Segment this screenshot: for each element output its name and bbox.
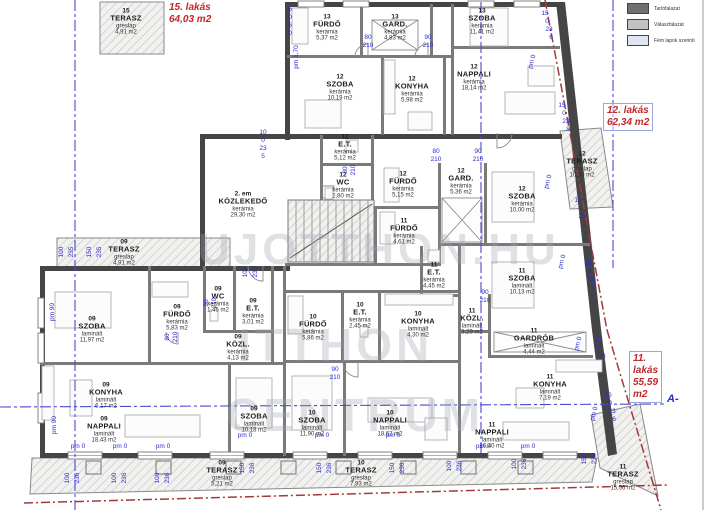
- balcony-post: [281, 461, 296, 474]
- room-name: KÖZL.: [226, 341, 250, 349]
- dimension-label: pm 0: [238, 433, 252, 440]
- dimension-label: pm 0: [386, 433, 400, 440]
- dimension-label: 0: [598, 346, 602, 353]
- dimension-label: 15: [558, 103, 565, 110]
- room-name: E.T.: [349, 309, 371, 317]
- dimension-label: 10: [604, 393, 611, 400]
- room-material: kerámia: [326, 89, 353, 96]
- dimension-label: pm 0: [476, 444, 490, 451]
- room-area: 4,13 m2: [226, 356, 250, 363]
- room-name: KONYHA: [395, 83, 429, 91]
- furniture-item: [152, 282, 188, 297]
- room-material: kerámia: [332, 187, 354, 194]
- room-label-wc-12: 12WCkerámia2,80 m2: [332, 171, 354, 200]
- room-area: 2,45 m2: [349, 324, 371, 331]
- dimension-label: 210: [330, 375, 341, 382]
- room-name: SZOBA: [508, 193, 535, 201]
- room-material: kerámia: [313, 29, 341, 36]
- dimension-label: 236: [122, 473, 129, 484]
- room-name: FÜRDŐ: [313, 21, 341, 29]
- dimension-label: 210: [423, 43, 434, 50]
- dimension-label: 0: [588, 269, 592, 276]
- dimension-label: 210: [351, 165, 358, 176]
- room-area: 29,30 m2: [219, 213, 268, 220]
- room-label-szoba-12: 12SZOBAkerámia10,19 m2: [326, 73, 353, 102]
- room-label-szoba-13: 13SZOBAkerámia11,41 m2: [468, 7, 495, 36]
- room-name: KÖZL.: [460, 315, 484, 323]
- dimension-label: 6: [582, 222, 586, 229]
- apartment-label-line: 11.: [633, 353, 658, 365]
- dimension-label: 236: [522, 459, 529, 470]
- dimension-label: 15: [541, 11, 548, 18]
- room-name: SZOBA: [78, 323, 105, 331]
- room-name: GARD.: [382, 21, 407, 29]
- room-material: kerámia: [389, 186, 417, 193]
- room-area: 15,56 m2: [607, 486, 638, 493]
- dimension-label: 23: [259, 146, 266, 153]
- legend-swatch-icon: [627, 3, 649, 14]
- dimension-label: 150: [582, 454, 589, 465]
- room-area: 5,36 m2: [448, 190, 473, 197]
- room-area: 18,14 m2: [457, 86, 491, 93]
- furniture-item: [408, 112, 432, 130]
- room-area: 5,15 m2: [389, 193, 417, 200]
- dimension-label: 236: [327, 463, 334, 474]
- room-name: FÜRDŐ: [390, 225, 418, 233]
- dimension-label: 6: [592, 285, 596, 292]
- room-label-terasz-11: 11TERASZgreslap15,56 m2: [607, 463, 638, 492]
- room-area: 5,21 m2: [206, 482, 237, 489]
- room-material: kerámia: [163, 319, 191, 326]
- room-material: kerámia: [395, 91, 429, 98]
- room-label-f-rd-10: 10FÜRDŐkerámia5,86 m2: [299, 313, 327, 342]
- balcony-post: [86, 461, 101, 474]
- room-name: GARD.: [448, 175, 473, 183]
- room-label-gard-13: 13GARD.kerámia4,83 m2: [382, 13, 407, 42]
- window: [298, 1, 324, 7]
- room-name: GARDRÓB: [514, 335, 554, 343]
- room-area: 10,19 m2: [326, 96, 353, 103]
- furniture-item: [385, 294, 453, 305]
- furniture-item: [503, 422, 569, 440]
- dimension-label: 235: [253, 267, 260, 278]
- room-material: laminált: [533, 389, 567, 396]
- dimension-label: 80: [364, 35, 371, 42]
- room-area: 11,41 m2: [468, 30, 495, 37]
- dimension-label: 8: [566, 127, 570, 134]
- legend-swatch-icon: [627, 19, 649, 30]
- room-label-konyha-11: 11KONYHAlaminált7,19 m2: [533, 373, 567, 402]
- room-material: kerámia: [390, 233, 418, 240]
- room-material: laminált: [89, 397, 123, 404]
- room-material: greslap: [566, 166, 597, 173]
- room-label-e-t-09: 09E.T.kerámia3,01 m2: [242, 297, 264, 326]
- dimension-label: 0: [545, 19, 549, 26]
- dimension-label: 100: [447, 461, 454, 472]
- room-area: 10,30 m2: [566, 173, 597, 180]
- room-label-szoba-09: 09SZOBAlaminált11,97 m2: [78, 315, 105, 344]
- room-name: KONYHA: [401, 318, 435, 326]
- room-material: greslap: [607, 479, 638, 486]
- dimension-label: 10: [594, 338, 601, 345]
- room-label-nappali-12: 12NAPPALIkerámia18,14 m2: [457, 63, 491, 92]
- dimension-label: pm 0: [71, 444, 85, 451]
- dimension-label: 210: [363, 43, 374, 50]
- furniture-item: [384, 60, 395, 114]
- dimension-label: 6: [549, 35, 553, 42]
- room-label-nappali-09: 09NAPPALIlaminált18,43 m2: [87, 415, 121, 444]
- room-area: 7,19 m2: [533, 396, 567, 403]
- furniture-item: [505, 92, 555, 114]
- room-name: KONYHA: [533, 381, 567, 389]
- room-name: NAPPALI: [373, 417, 407, 425]
- room-label-konyha-09: 09KONYHAlaminált6,17 m2: [89, 381, 123, 410]
- room-area: 10,00 m2: [508, 208, 535, 215]
- window: [38, 298, 44, 328]
- apartment-label-line: 15. lakás: [169, 2, 211, 14]
- dimension-label: 90: [424, 35, 431, 42]
- room-area: 3,01 m2: [242, 320, 264, 327]
- dimension-label: pm 1,70: [294, 45, 301, 69]
- room-area: 3,29 m2: [460, 330, 484, 337]
- room-name: NAPPALI: [87, 423, 121, 431]
- dimension-label: 0: [562, 111, 566, 118]
- legend-item: Válaszfalazat: [627, 19, 695, 30]
- dimension-label: 0: [578, 206, 582, 213]
- room-material: kerámia: [349, 317, 371, 324]
- room-name: SZOBA: [240, 413, 267, 421]
- watermark-text: UJOTTHON.HU: [198, 228, 560, 272]
- dimension-label: 235: [69, 247, 76, 258]
- dimension-label: 6: [288, 7, 292, 14]
- room-name: TERASZ: [206, 467, 237, 475]
- legend-label: Tartófalazat: [654, 6, 680, 12]
- dimension-label: 210: [480, 298, 491, 305]
- furniture-item: [125, 415, 200, 437]
- room-area: 4,83 m2: [382, 36, 407, 43]
- room-label-szoba-09: 09SZOBAlaminált10,18 m2: [240, 405, 267, 434]
- dimension-label: 23: [598, 354, 605, 361]
- dimension-label: 150: [240, 463, 247, 474]
- room-material: kerámia: [448, 183, 473, 190]
- dimension-label: 80: [165, 333, 172, 340]
- apartment-label-line: 62,34 m2: [607, 117, 649, 129]
- dimension-label: 90: [474, 149, 481, 156]
- room-label-e-t-12: 12E.T.kerámia5,12 m2: [334, 133, 356, 162]
- room-material: kerámia: [219, 206, 268, 213]
- dimension-label: 6: [288, 23, 292, 30]
- dimension-label: 150: [317, 463, 324, 474]
- apartment-11-label: 11.lakás55,59m2: [629, 351, 662, 403]
- room-name: NAPPALI: [457, 71, 491, 79]
- dimension-label: 6: [612, 417, 616, 424]
- room-material: kerámia: [468, 23, 495, 30]
- legend-label: Fém lapok szerinti: [654, 38, 695, 44]
- dimension-label: 236: [457, 461, 464, 472]
- room-name: SZOBA: [468, 15, 495, 23]
- room-material: laminált: [508, 283, 535, 290]
- dimension-label: 23: [562, 119, 569, 126]
- dimension-label: 23: [588, 277, 595, 284]
- room-label-e-t-10: 10E.T.kerámia2,45 m2: [349, 301, 371, 330]
- room-name: KÖZLEKEDŐ: [219, 198, 268, 206]
- dimension-label: 6: [602, 362, 606, 369]
- room-area: 1,45 m2: [207, 308, 229, 315]
- room-name: E.T.: [334, 141, 356, 149]
- room-label-e-t-11: 11E.T.kerámia4,45 m2: [423, 261, 445, 290]
- room-material: kerámia: [334, 149, 356, 156]
- room-material: laminált: [401, 326, 435, 333]
- dimension-label: 23: [578, 214, 585, 221]
- dimension-label: 0: [288, 31, 292, 38]
- room-name: SZOBA: [326, 81, 353, 89]
- room-label-terasz-15: 15TERASZgreslap4,91 m2: [110, 7, 141, 36]
- room-area: 7,93 m2: [345, 482, 376, 489]
- dimension-label: pm 0: [156, 444, 170, 451]
- room-name: TERASZ: [108, 246, 139, 254]
- room-material: greslap: [108, 254, 139, 261]
- floor-plan-canvas: TartófalazatVálaszfalazatFém lapok szeri…: [0, 0, 720, 510]
- room-label-konyha-12: 12KONYHAkerámia5,98 m2: [395, 75, 429, 104]
- dimension-label: 236: [592, 454, 599, 465]
- dimension-label: 15: [584, 261, 591, 268]
- room-name: FÜRDŐ: [299, 321, 327, 329]
- room-label-terasz-09: 09TERASZgreslap5,21 m2: [206, 459, 237, 488]
- room-label-terasz-09: 09TERASZgreslap4,91 m2: [108, 238, 139, 267]
- dimension-label: 10: [259, 130, 266, 137]
- section-marker-a: A-: [667, 393, 679, 405]
- room-label-szoba-11: 11SZOBAlaminált10,13 m2: [508, 267, 535, 296]
- room-label-konyha-10: 10KONYHAlaminált4,30 m2: [401, 310, 435, 339]
- dimension-label: 100: [112, 473, 119, 484]
- dimension-label: 90: [331, 367, 338, 374]
- dimension-label: pm 90: [52, 416, 59, 434]
- room-material: kerámia: [382, 29, 407, 36]
- room-material: laminált: [460, 323, 484, 330]
- room-name: E.T.: [242, 305, 264, 313]
- legend-swatch-icon: [627, 35, 649, 46]
- room-name: KONYHA: [89, 389, 123, 397]
- room-area: 5,98 m2: [395, 98, 429, 105]
- room-material: laminált: [514, 343, 554, 350]
- apartment-label-line: 64,03 m2: [169, 14, 211, 26]
- room-label-terasz-12: 12TERASZgreslap10,30 m2: [566, 150, 597, 179]
- room-material: greslap: [206, 475, 237, 482]
- window: [514, 1, 540, 7]
- legend: TartófalazatVálaszfalazatFém lapok szeri…: [627, 3, 695, 51]
- apartment-12-label: 12. lakás62,34 m2: [603, 103, 653, 131]
- dimension-label: 100: [243, 267, 250, 278]
- room-area: 10,13 m2: [508, 290, 535, 297]
- dimension-label: 210: [473, 157, 484, 164]
- window: [343, 1, 369, 7]
- room-material: kerámia: [299, 329, 327, 336]
- dimension-label: 0: [608, 401, 612, 408]
- dimension-label: 80: [432, 149, 439, 156]
- dimension-label: 235: [97, 247, 104, 258]
- room-name: FÜRDŐ: [163, 311, 191, 319]
- apartment-label-line: m2: [633, 389, 658, 401]
- dimension-label: 5: [261, 154, 265, 161]
- dimension-label: pm 0: [113, 444, 127, 451]
- room-label-f-rd-09: 09FÜRDŐkerámia5,83 m2: [163, 303, 191, 332]
- dimension-label: 100: [59, 247, 66, 258]
- dimension-label: 80: [343, 166, 350, 173]
- room-area: 5,37 m2: [313, 36, 341, 43]
- room-label-gard-12: 12GARD.kerámia5,36 m2: [448, 167, 473, 196]
- room-label-f-rd-11: 11FÜRDŐkerámia4,61 m2: [390, 217, 418, 246]
- dimension-label: pm 0: [521, 444, 535, 451]
- dimension-label: 23: [545, 27, 552, 34]
- room-material: laminált: [78, 331, 105, 338]
- room-name: FÜRDŐ: [389, 178, 417, 186]
- apartment-15-label: 15. lakás64,03 m2: [169, 2, 211, 26]
- apartment-label-line: 12. lakás: [607, 105, 649, 117]
- legend-label: Válaszfalazat: [654, 22, 684, 28]
- furniture-item: [305, 100, 341, 128]
- balcony-post: [461, 461, 476, 474]
- room-material: kerámia: [226, 349, 250, 356]
- dimension-label: 210: [173, 332, 180, 343]
- room-material: laminált: [240, 421, 267, 428]
- dimension-label: pm 0: [315, 433, 329, 440]
- dimension-label: 150: [87, 247, 94, 258]
- room-area: 5,12 m2: [334, 156, 356, 163]
- dimension-label: 100: [512, 459, 519, 470]
- furniture-item: [556, 360, 602, 372]
- room-name: SZOBA: [508, 275, 535, 283]
- room-name: SZOBA: [298, 417, 325, 425]
- room-material: greslap: [345, 475, 376, 482]
- room-label-k-zleked-2-em: 2. emKÖZLEKEDŐkerámia29,30 m2: [219, 190, 268, 219]
- dimension-label: 90: [481, 290, 488, 297]
- room-area: 4,45 m2: [423, 284, 445, 291]
- room-label-terasz-10: 10TERASZgreslap7,93 m2: [345, 459, 376, 488]
- dimension-label: pm 90: [50, 303, 57, 321]
- room-label-f-rd-13: 13FÜRDŐkerámia5,37 m2: [313, 13, 341, 42]
- dimension-label: 90: [204, 299, 211, 306]
- furniture-item: [42, 366, 54, 420]
- room-name: NAPPALI: [475, 429, 509, 437]
- room-name: TERASZ: [566, 158, 597, 166]
- room-label-f-rd-12: 12FÜRDŐkerámia5,15 m2: [389, 170, 417, 199]
- room-area: 4,61 m2: [390, 240, 418, 247]
- room-name: TERASZ: [110, 15, 141, 23]
- room-area: 4,44 m2: [514, 350, 554, 357]
- room-area: 4,91 m2: [108, 261, 139, 268]
- room-material: kerámia: [423, 277, 445, 284]
- room-area: 11,97 m2: [78, 338, 105, 345]
- dimension-label: 23: [608, 409, 615, 416]
- dimension-label: 236: [250, 463, 257, 474]
- dimension-label: 210: [212, 298, 219, 309]
- room-name: TERASZ: [607, 471, 638, 479]
- room-material: kerámia: [242, 313, 264, 320]
- room-label-k-zl-09: 09KÖZL.kerámia4,13 m2: [226, 333, 250, 362]
- legend-item: Fém lapok szerinti: [627, 35, 695, 46]
- legend-item: Tartófalazat: [627, 3, 695, 14]
- dimension-label: 150: [390, 463, 397, 474]
- room-name: TERASZ: [345, 467, 376, 475]
- dimension-label: 100: [155, 473, 162, 484]
- room-area: 4,30 m2: [401, 333, 435, 340]
- furniture-item: [292, 8, 308, 44]
- dimension-label: 236: [75, 473, 82, 484]
- dimension-label: 210: [431, 157, 442, 164]
- apartment-label-line: 55,59: [633, 377, 658, 389]
- room-name: WC: [332, 179, 354, 187]
- room-area: 5,86 m2: [299, 336, 327, 343]
- window: [38, 333, 44, 363]
- apartment-label-line: lakás: [633, 365, 658, 377]
- dimension-label: 15: [574, 198, 581, 205]
- dimension-label: 0: [288, 15, 292, 22]
- room-material: laminált: [87, 431, 121, 438]
- room-area: 2,80 m2: [332, 194, 354, 201]
- room-label-szoba-12: 12SZOBAkerámia10,00 m2: [508, 185, 535, 214]
- dimension-label: 100: [65, 473, 72, 484]
- dimension-label: 236: [400, 463, 407, 474]
- room-label-k-zl-11: 11KÖZL.laminált3,29 m2: [460, 307, 484, 336]
- room-material: kerámia: [457, 79, 491, 86]
- dimension-label: 0: [261, 138, 265, 145]
- room-material: greslap: [110, 23, 141, 30]
- room-area: 4,91 m2: [110, 30, 141, 37]
- dimension-label: 236: [165, 473, 172, 484]
- room-material: kerámia: [508, 201, 535, 208]
- room-label-gardr-b-11: 11GARDRÓBlaminált4,44 m2: [514, 327, 554, 356]
- room-name: E.T.: [423, 269, 445, 277]
- room-area: 6,17 m2: [89, 404, 123, 411]
